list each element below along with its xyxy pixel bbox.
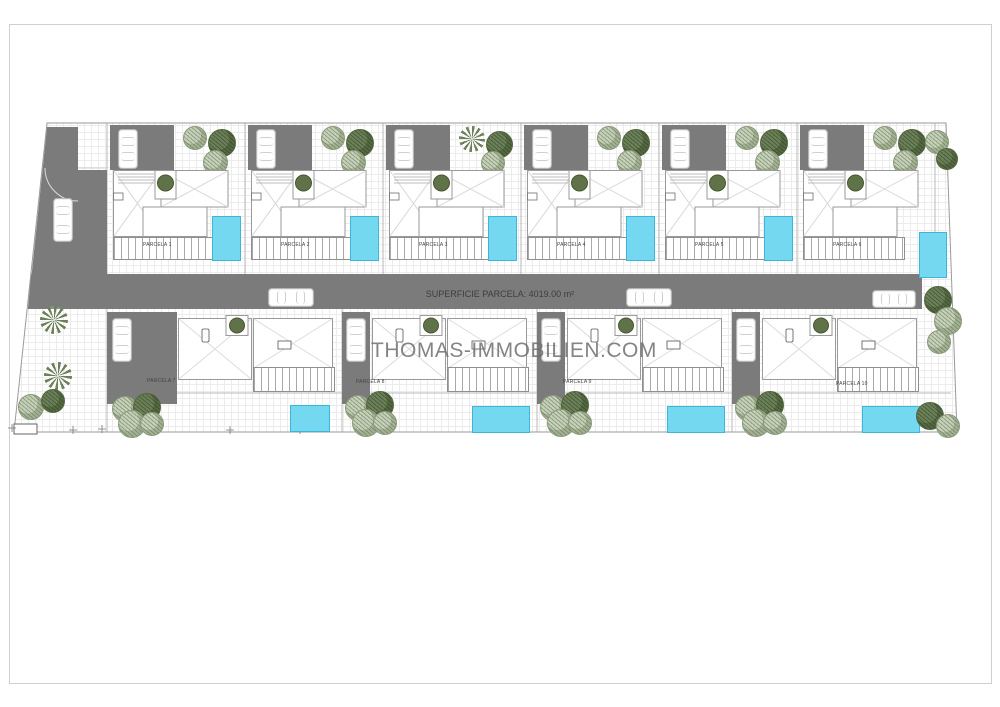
parcel-label: PARCELA 10 [836,381,868,387]
site-area-label: SUPERFICIE PARCELA: 4019.00 m² [400,289,600,299]
pool [488,216,517,261]
parcel-label: PARCELA 1 [143,242,172,248]
parcel-4: PARCELA 4 [521,123,659,265]
tree-icon [936,414,960,438]
parcel-label: PARCELA 9 [563,379,592,385]
pool [290,405,330,432]
parcel-9: PARCELA 9 [537,310,732,435]
tree-icon [568,411,592,435]
car-icon [268,288,314,307]
terrace [253,367,335,392]
terrace [527,237,629,260]
parcel-label: PARCELA 8 [356,379,385,385]
palm-tree-icon [459,126,485,152]
tree-icon [183,126,207,150]
parcel-label: PARCELA 5 [695,242,724,248]
car-icon [53,198,73,242]
car-icon [118,129,138,169]
terrace [447,367,529,392]
pool [626,216,655,261]
parcel-label: PARCELA 6 [833,242,862,248]
watermark-text: THOMAS-IMMOBILIEN.COM [371,339,657,363]
tree-icon [735,126,759,150]
parcel-label: PARCELA 4 [557,242,586,248]
tree-icon [873,126,897,150]
pool [472,406,530,433]
villa-roof-plan [803,170,919,237]
car-icon [670,129,690,169]
parcel-label: PARCELA 2 [281,242,310,248]
terrace [251,237,353,260]
tree-icon [927,330,951,354]
parcel-8: PARCELA 8 [342,310,537,435]
terrace [113,237,215,260]
tree-icon [321,126,345,150]
car-icon [736,318,756,362]
car-icon [346,318,366,362]
car-icon [394,129,414,169]
parcel-7: PARCELA 7 [107,310,342,435]
terrace [389,237,491,260]
car-icon [532,129,552,169]
parcel-5: PARCELA 5 [659,123,797,265]
parcel-3: PARCELA 3 [383,123,521,265]
pool [919,232,947,278]
utility-box [14,424,37,434]
tree-icon [763,411,787,435]
terrace [837,367,919,392]
palm-tree-icon [44,362,72,390]
car-icon [112,318,132,362]
parcel-1: PARCELA 1 [107,123,245,265]
tree-icon [140,412,164,436]
pool [764,216,793,261]
site-plan-sheet: PARCELA 1 PARCELA 2 PARCELA 3 PARCELA 4 [0,0,1000,707]
terrace [803,237,905,260]
tree-icon [41,389,65,413]
palm-tree-icon [40,306,68,334]
pool [862,406,920,433]
car-icon [872,290,916,308]
parcel-label: PARCELA 3 [419,242,448,248]
tree-icon [373,411,397,435]
pool [350,216,379,261]
car-icon [256,129,276,169]
parcel-2: PARCELA 2 [245,123,383,265]
terrace [665,237,767,260]
tree-icon [18,394,44,420]
parcel-label: PARCELA 7 [147,378,176,384]
tree-icon [936,148,958,170]
pool [212,216,241,261]
terrace [642,367,724,392]
parcel-6: PARCELA 6 [797,123,935,265]
car-icon [808,129,828,169]
tree-icon [597,126,621,150]
car-icon [626,288,672,307]
parcel-10: PARCELA 10 [732,310,928,435]
pool [667,406,725,433]
